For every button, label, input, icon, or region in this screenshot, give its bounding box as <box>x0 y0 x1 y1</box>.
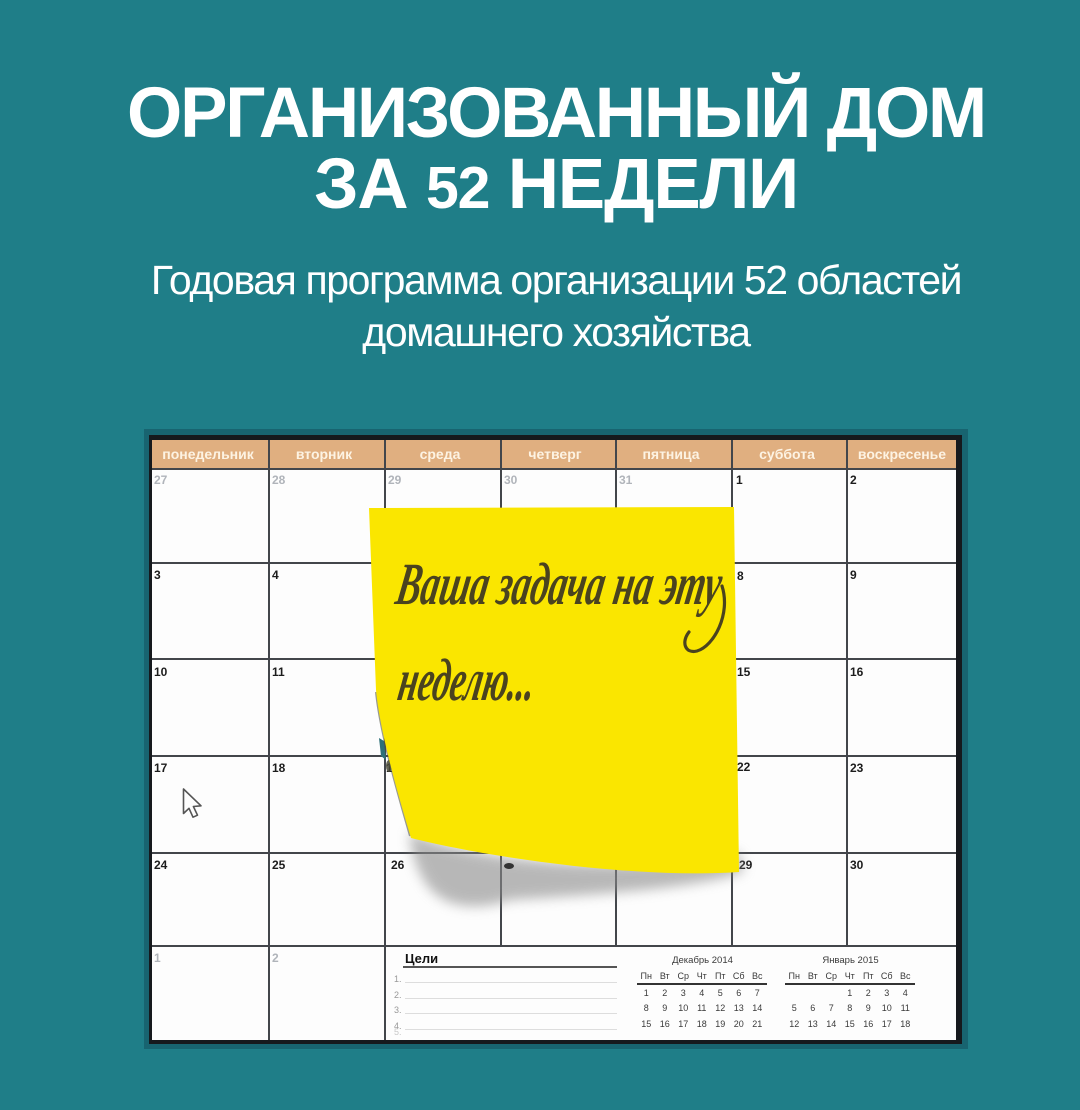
svg-text:Ваша задача на эту: Ваша задача на эту <box>391 551 728 617</box>
svg-text:неделю...: неделю... <box>394 647 542 713</box>
